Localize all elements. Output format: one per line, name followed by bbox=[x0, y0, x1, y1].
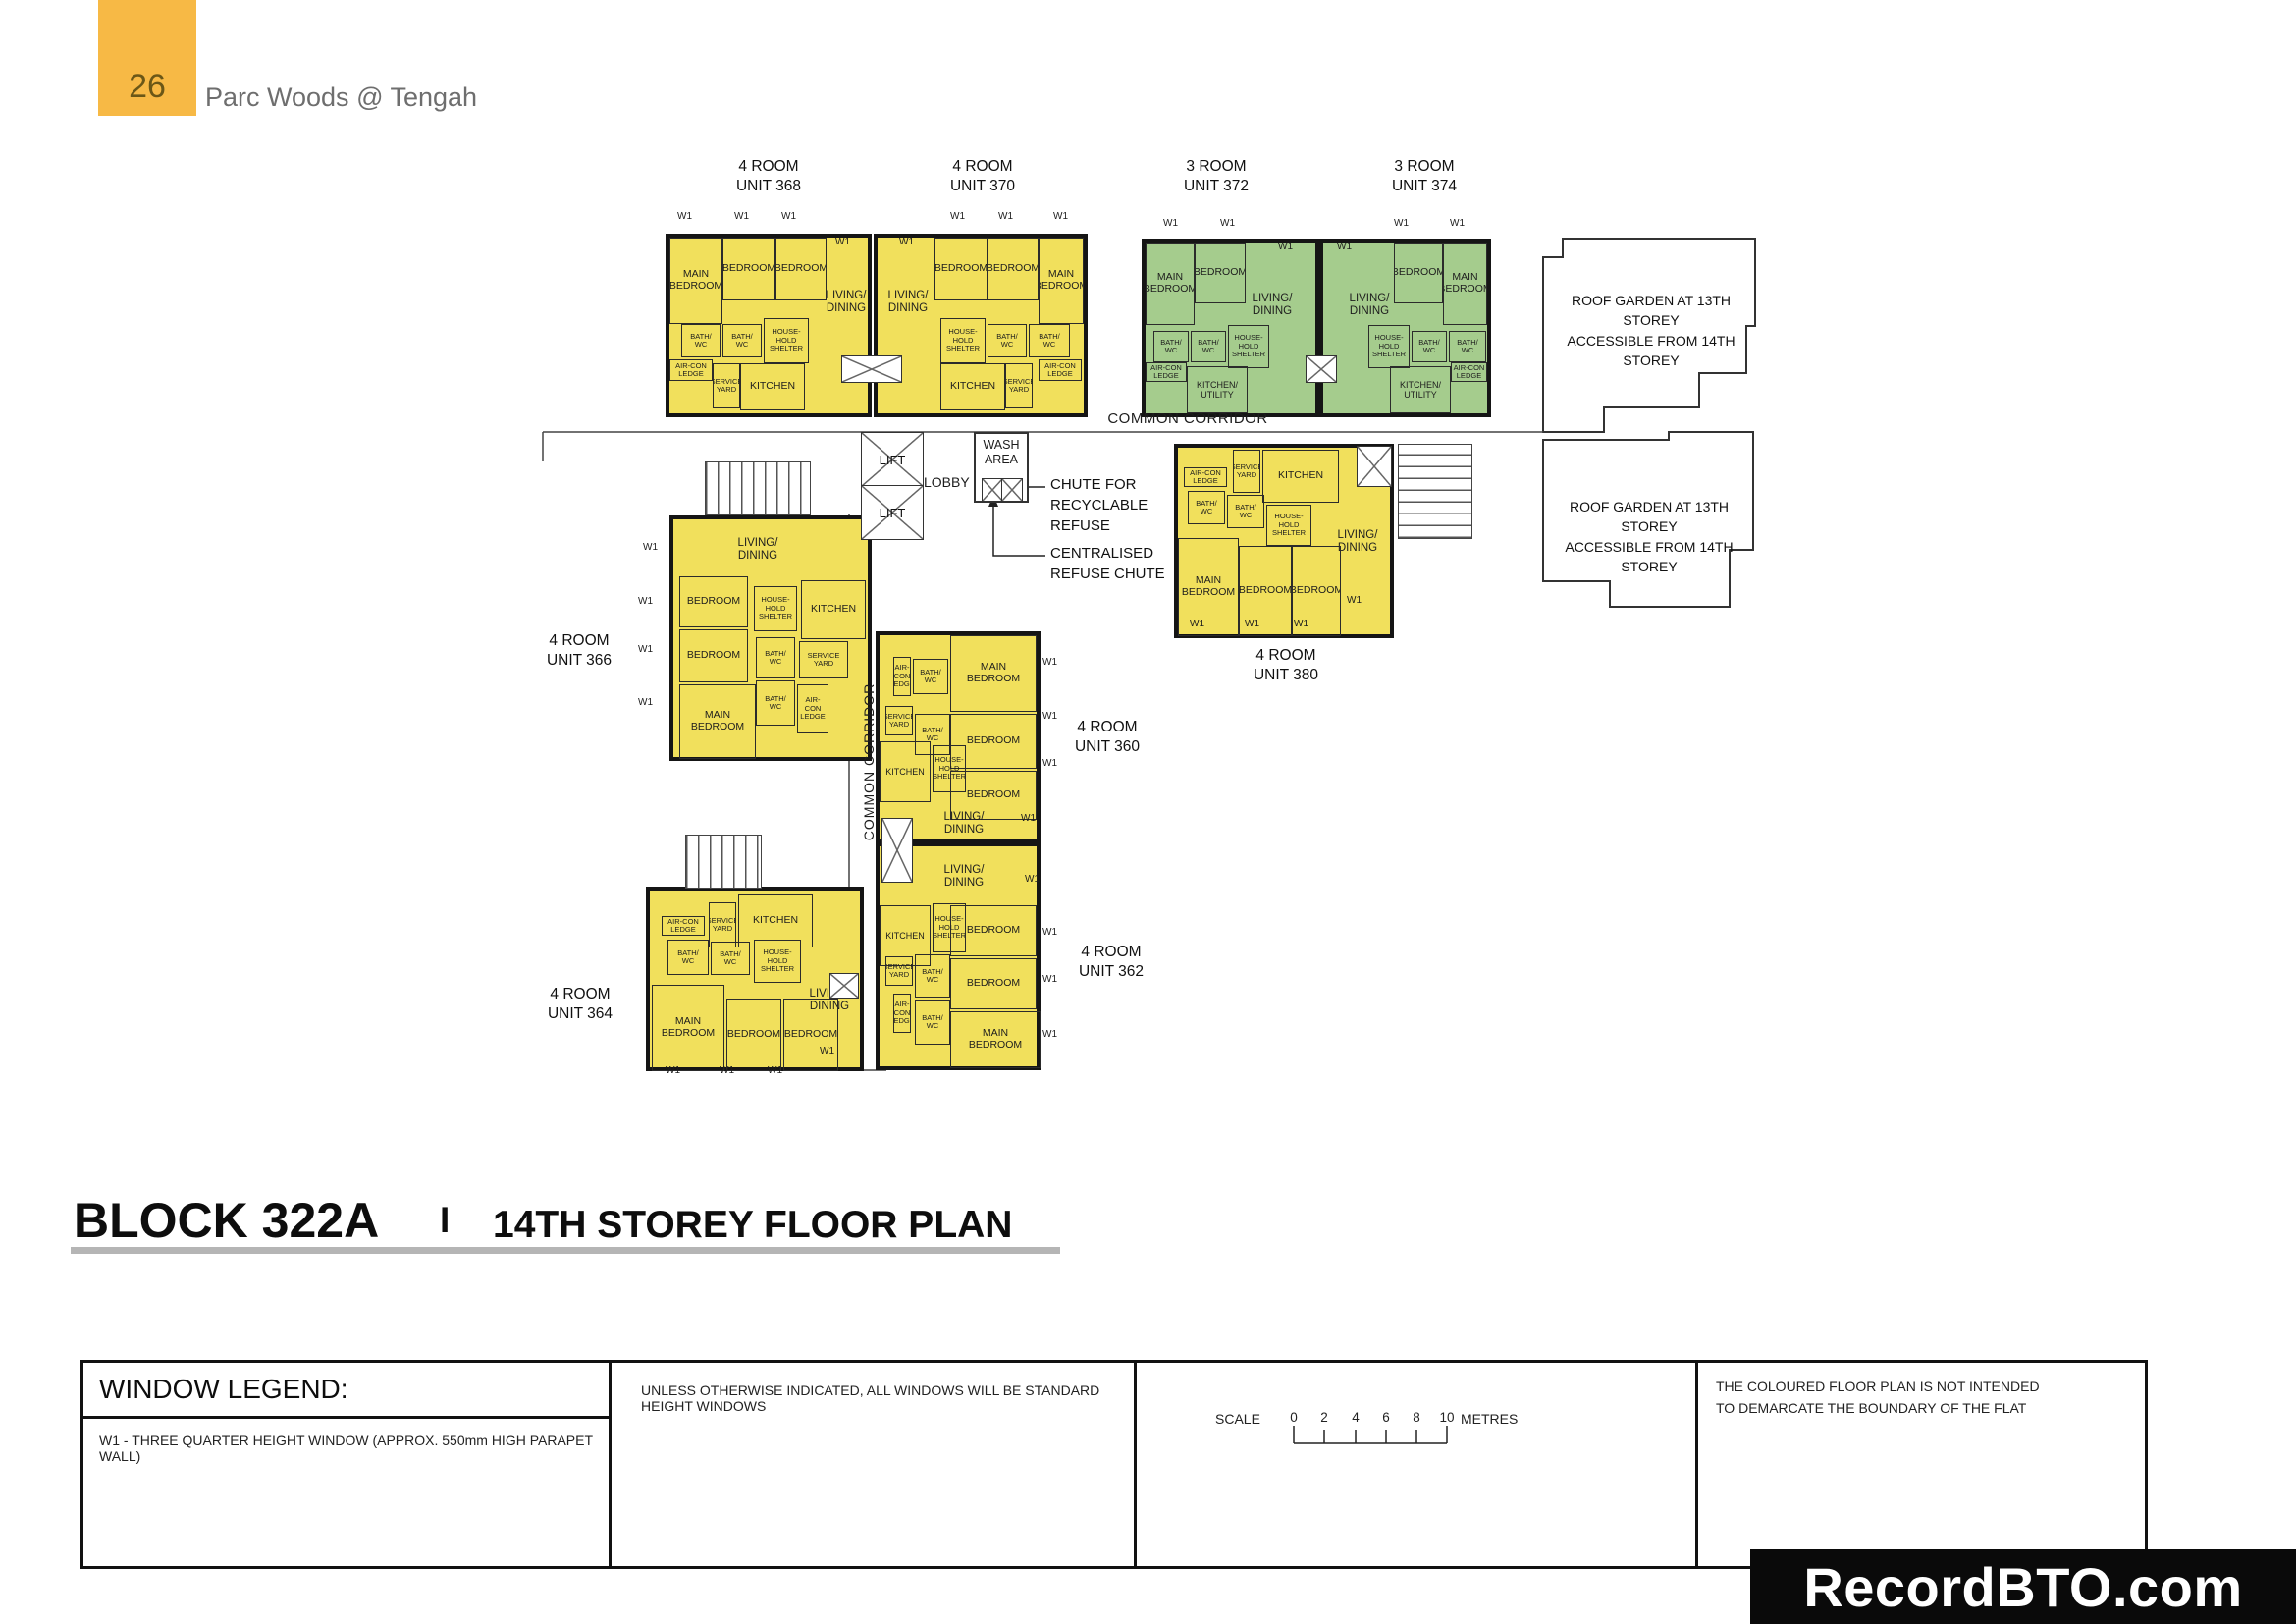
room-main-bedroom: MAIN BEDROOM bbox=[950, 635, 1037, 712]
roof-garden-note: ROOF GARDEN AT 13TH STOREY ACCESSIBLE FR… bbox=[1547, 497, 1751, 576]
watermark-text: RecordBTO.com bbox=[1803, 1555, 2242, 1619]
window-marker-w1: W1 bbox=[666, 1065, 680, 1076]
room-bath-wc: BATH/ WC bbox=[913, 659, 948, 694]
room-main-bedroom: MAIN BEDROOM bbox=[950, 1011, 1041, 1068]
window-marker-w1: W1 bbox=[781, 211, 796, 222]
room-service-yard: SERVICE YARD bbox=[885, 956, 913, 986]
window-marker-w1: W1 bbox=[1337, 242, 1352, 252]
centralised-chute-note: CENTRALISED REFUSE CHUTE bbox=[1050, 543, 1165, 584]
scale-tick-8: 8 bbox=[1405, 1410, 1428, 1425]
room-bath-wc: BATH/ WC bbox=[1412, 331, 1447, 362]
room-bath-wc: BATH/ WC bbox=[1449, 331, 1486, 362]
unit-368-type: 4 ROOM bbox=[690, 157, 847, 177]
room-bath-wc: BATH/ WC bbox=[756, 637, 795, 678]
room-bath-wc: BATH/ WC bbox=[756, 680, 795, 726]
unit-364-type: 4 ROOM bbox=[502, 985, 659, 1004]
scale-unit: METRES bbox=[1461, 1411, 1518, 1427]
refuse-chute-icon bbox=[1306, 355, 1337, 383]
room-kitchen: KITCHEN bbox=[880, 741, 931, 802]
window-marker-w1: W1 bbox=[899, 237, 914, 247]
room-living-dining: LIVING/ DINING bbox=[825, 245, 868, 358]
scale-tick-6: 6 bbox=[1374, 1410, 1398, 1425]
room-aircon-ledge: AIR-CON LEDGE bbox=[893, 657, 911, 696]
common-corridor-label-vertical: COMMON CORRIDOR bbox=[861, 664, 877, 860]
refuse-chute-icon bbox=[1001, 478, 1023, 502]
room-main-bedroom: MAIN BEDROOM bbox=[1178, 538, 1239, 636]
window-marker-w1: W1 bbox=[1347, 595, 1362, 606]
unit-366-type: 4 ROOM bbox=[501, 631, 658, 651]
window-marker-w1: W1 bbox=[1190, 619, 1204, 629]
floor-plan-page: 26 Parc Woods @ Tengah bbox=[0, 0, 2296, 1624]
room-main-bedroom: MAIN BEDROOM bbox=[1443, 243, 1487, 325]
unit-366-number: UNIT 366 bbox=[501, 651, 658, 671]
chute-recyclable-note: CHUTE FOR RECYCLABLE REFUSE bbox=[1050, 474, 1148, 536]
window-marker-w1: W1 bbox=[1042, 927, 1057, 938]
unit-360-number: UNIT 360 bbox=[1029, 737, 1186, 757]
unit-360-label: 4 ROOM UNIT 360 bbox=[1029, 718, 1186, 757]
room-living-dining: LIVING/ DINING bbox=[703, 525, 813, 574]
room-kitchen-utility: KITCHEN/ UTILITY bbox=[1390, 366, 1451, 413]
window-marker-w1: W1 bbox=[1163, 218, 1178, 229]
room-living-dining: LIVING/ DINING bbox=[919, 856, 1009, 897]
room-household-shelter: HOUSE- HOLD SHELTER bbox=[754, 940, 801, 983]
window-marker-w1: W1 bbox=[638, 697, 653, 708]
scale-tick-2: 2 bbox=[1312, 1410, 1336, 1425]
room-service-yard: SERVICE YARD bbox=[799, 641, 848, 678]
window-marker-w1: W1 bbox=[1042, 711, 1057, 722]
window-marker-w1: W1 bbox=[1245, 619, 1259, 629]
room-bath-wc: BATH/ WC bbox=[722, 324, 762, 357]
room-bedroom: BEDROOM bbox=[988, 238, 1039, 300]
unit-364-label: 4 ROOM UNIT 364 bbox=[502, 985, 659, 1024]
window-marker-w1: W1 bbox=[677, 211, 692, 222]
scale-ruler bbox=[1294, 1426, 1447, 1443]
scale-tick-10: 10 bbox=[1435, 1410, 1459, 1425]
window-marker-w1: W1 bbox=[638, 644, 653, 655]
room-main-bedroom: MAIN BEDROOM bbox=[679, 684, 756, 759]
refuse-chute-icon bbox=[1357, 446, 1392, 487]
unit-374-label: 3 ROOM UNIT 374 bbox=[1346, 157, 1503, 196]
room-main-bedroom: MAIN BEDROOM bbox=[1146, 243, 1195, 325]
window-marker-w1: W1 bbox=[1042, 974, 1057, 985]
unit-374-block: LIVING/ DINING BEDROOM MAIN BEDROOM HOUS… bbox=[1319, 239, 1491, 417]
room-household-shelter: HOUSE- HOLD SHELTER bbox=[1228, 325, 1269, 368]
unit-368-label: 4 ROOM UNIT 368 bbox=[690, 157, 847, 196]
room-household-shelter: HOUSE- HOLD SHELTER bbox=[764, 318, 809, 363]
room-main-bedroom: MAIN BEDROOM bbox=[669, 238, 722, 324]
roof-garden-note: ROOF GARDEN AT 13TH STOREY ACCESSIBLE FR… bbox=[1549, 291, 1753, 370]
room-kitchen-utility: KITCHEN/ UTILITY bbox=[1187, 366, 1248, 413]
window-marker-w1: W1 bbox=[1394, 218, 1409, 229]
room-aircon-ledge: AIR-CON LEDGE bbox=[662, 916, 705, 936]
window-marker-w1: W1 bbox=[1220, 218, 1235, 229]
window-marker-w1: W1 bbox=[1294, 619, 1308, 629]
lift-shaft-icon bbox=[881, 818, 913, 883]
room-service-yard: SERVICE YARD bbox=[713, 363, 740, 408]
unit-372-block: MAIN BEDROOM BEDROOM LIVING/ DINING BATH… bbox=[1142, 239, 1319, 417]
room-main-bedroom: MAIN BEDROOM bbox=[652, 985, 724, 1071]
refuse-chute-icon bbox=[982, 478, 1003, 502]
room-bedroom: BEDROOM bbox=[679, 576, 748, 627]
unit-366-block: LIVING/ DINING BEDROOM BEDROOM MAIN BEDR… bbox=[669, 515, 872, 761]
room-aircon-ledge: AIR-CON LEDGE bbox=[1146, 362, 1187, 382]
room-bedroom: BEDROOM bbox=[679, 629, 748, 682]
room-service-yard: SERVICE YARD bbox=[1005, 363, 1033, 408]
scale-label: SCALE bbox=[1215, 1411, 1260, 1427]
room-bath-wc: BATH/ WC bbox=[1029, 324, 1070, 357]
room-aircon-ledge: AIR-CON LEDGE bbox=[1184, 467, 1227, 487]
wash-area-label: WASH AREA bbox=[976, 434, 1027, 467]
window-marker-w1: W1 bbox=[1042, 1029, 1057, 1040]
unit-370-type: 4 ROOM bbox=[904, 157, 1061, 177]
room-bedroom: BEDROOM bbox=[775, 238, 827, 300]
window-marker-w1: W1 bbox=[1021, 813, 1036, 824]
scale-tick-0: 0 bbox=[1282, 1410, 1306, 1425]
unit-364-number: UNIT 364 bbox=[502, 1004, 659, 1024]
window-marker-w1: W1 bbox=[950, 211, 965, 222]
room-bedroom: BEDROOM bbox=[1394, 243, 1443, 303]
unit-370-label: 4 ROOM UNIT 370 bbox=[904, 157, 1061, 196]
unit-362-type: 4 ROOM bbox=[1033, 943, 1190, 962]
room-aircon-ledge: AIR-CON LEDGE bbox=[797, 684, 828, 733]
refuse-chute-icon bbox=[829, 973, 859, 999]
room-household-shelter: HOUSE- HOLD SHELTER bbox=[754, 586, 797, 631]
room-bedroom: BEDROOM bbox=[783, 999, 838, 1071]
centralised-leader-line bbox=[993, 505, 1045, 556]
unit-370-number: UNIT 370 bbox=[904, 177, 1061, 196]
staircase bbox=[705, 461, 811, 515]
staircase bbox=[685, 835, 762, 889]
unit-368-block: MAIN BEDROOM BEDROOM BEDROOM LIVING/ DIN… bbox=[666, 234, 872, 417]
unit-380-type: 4 ROOM bbox=[1207, 646, 1364, 666]
unit-374-type: 3 ROOM bbox=[1346, 157, 1503, 177]
unit-380-label: 4 ROOM UNIT 380 bbox=[1207, 646, 1364, 685]
room-main-bedroom: MAIN BEDROOM bbox=[1039, 238, 1084, 324]
window-marker-w1: W1 bbox=[643, 542, 658, 553]
window-marker-w1: W1 bbox=[998, 211, 1013, 222]
room-service-yard: SERVICE YARD bbox=[1233, 450, 1260, 493]
room-household-shelter: HOUSE- HOLD SHELTER bbox=[940, 318, 986, 363]
unit-368-number: UNIT 368 bbox=[690, 177, 847, 196]
unit-372-label: 3 ROOM UNIT 372 bbox=[1138, 157, 1295, 196]
room-bedroom: BEDROOM bbox=[950, 958, 1037, 1009]
unit-372-number: UNIT 372 bbox=[1138, 177, 1295, 196]
window-marker-w1: W1 bbox=[820, 1046, 834, 1056]
room-kitchen: KITCHEN bbox=[740, 363, 805, 410]
room-bath-wc: BATH/ WC bbox=[915, 1000, 950, 1045]
room-bedroom: BEDROOM bbox=[726, 999, 781, 1071]
unit-380-number: UNIT 380 bbox=[1207, 666, 1364, 685]
unit-370-block: LIVING/ DINING BEDROOM BEDROOM MAIN BEDR… bbox=[874, 234, 1088, 417]
common-corridor-label: COMMON CORRIDOR bbox=[1085, 410, 1291, 427]
room-bedroom: BEDROOM bbox=[950, 905, 1037, 956]
room-aircon-ledge: AIR-CON LEDGE bbox=[669, 359, 713, 381]
window-marker-w1: W1 bbox=[734, 211, 749, 222]
room-aircon-ledge: AIR-CON LEDGE bbox=[1451, 362, 1487, 382]
window-marker-w1: W1 bbox=[1042, 657, 1057, 668]
room-bath-wc: BATH/ WC bbox=[988, 324, 1027, 357]
lift-shaft: LIFT bbox=[861, 432, 924, 487]
room-bath-wc: BATH/ WC bbox=[1191, 331, 1226, 362]
room-bath-wc: BATH/ WC bbox=[681, 324, 721, 357]
watermark-banner: RecordBTO.com bbox=[1750, 1549, 2296, 1624]
room-bath-wc: BATH/ WC bbox=[1188, 491, 1225, 524]
window-marker-w1: W1 bbox=[1053, 211, 1068, 222]
room-service-yard: SERVICE YARD bbox=[885, 706, 913, 735]
unit-374-number: UNIT 374 bbox=[1346, 177, 1503, 196]
scale-tick-4: 4 bbox=[1344, 1410, 1367, 1425]
refuse-chute-icon bbox=[841, 355, 902, 383]
staircase bbox=[1398, 444, 1472, 539]
window-marker-w1: W1 bbox=[1042, 758, 1057, 769]
lobby-label: LOBBY bbox=[924, 474, 977, 490]
room-household-shelter: HOUSE- HOLD SHELTER bbox=[1368, 325, 1410, 368]
room-bath-wc: BATH/ WC bbox=[667, 940, 709, 975]
room-aircon-ledge: AIR-CON LEDGE bbox=[893, 994, 911, 1033]
window-marker-w1: W1 bbox=[720, 1065, 734, 1076]
room-bedroom: BEDROOM bbox=[1195, 243, 1246, 303]
window-marker-w1: W1 bbox=[638, 596, 653, 607]
unit-360-block: AIR-CON LEDGE BATH/ WC MAIN BEDROOM SERV… bbox=[876, 631, 1041, 842]
room-living-dining: LIVING/ DINING bbox=[885, 245, 931, 358]
room-bedroom: BEDROOM bbox=[722, 238, 775, 300]
window-marker-w1: W1 bbox=[1278, 242, 1293, 252]
room-bath-wc: BATH/ WC bbox=[711, 942, 750, 975]
window-marker-w1: W1 bbox=[768, 1065, 782, 1076]
lift-label: LIFT bbox=[880, 453, 906, 467]
room-kitchen: KITCHEN bbox=[940, 363, 1005, 410]
room-bath-wc: BATH/ WC bbox=[915, 954, 950, 998]
room-living-dining: LIVING/ DINING bbox=[919, 804, 1009, 843]
room-household-shelter: HOUSE- HOLD SHELTER bbox=[1266, 505, 1311, 546]
lift-shaft: LIFT bbox=[861, 485, 924, 540]
window-marker-w1: W1 bbox=[835, 237, 850, 247]
window-marker-w1: W1 bbox=[1025, 874, 1040, 885]
lift-label: LIFT bbox=[880, 506, 906, 520]
room-bath-wc: BATH/ WC bbox=[1227, 495, 1264, 528]
window-marker-w1: W1 bbox=[1450, 218, 1465, 229]
room-aircon-ledge: AIR-CON LEDGE bbox=[1039, 359, 1082, 381]
unit-372-type: 3 ROOM bbox=[1138, 157, 1295, 177]
room-bedroom: BEDROOM bbox=[934, 238, 988, 300]
unit-366-label: 4 ROOM UNIT 366 bbox=[501, 631, 658, 671]
room-kitchen: KITCHEN bbox=[801, 580, 866, 639]
room-bath-wc: BATH/ WC bbox=[1153, 331, 1189, 362]
